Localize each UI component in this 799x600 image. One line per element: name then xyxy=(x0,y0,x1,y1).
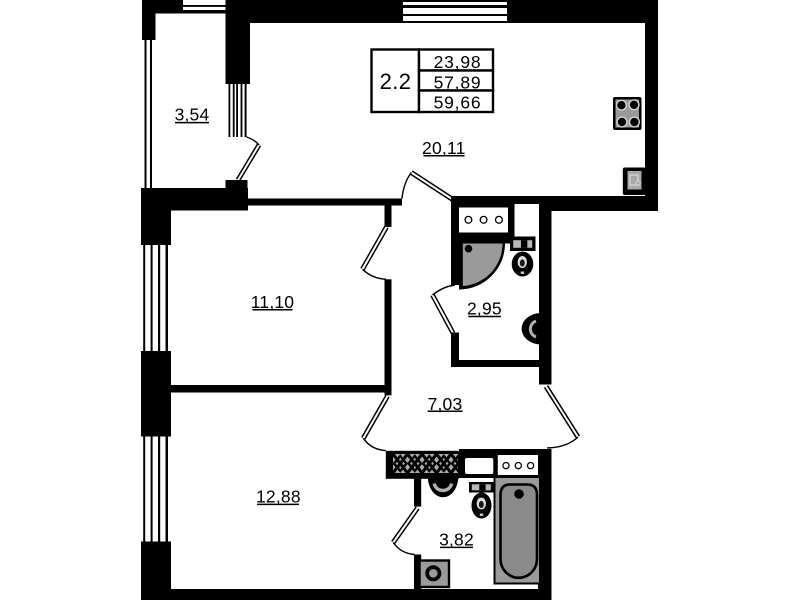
svg-text:2.2: 2.2 xyxy=(380,69,412,94)
svg-text:11,10: 11,10 xyxy=(251,292,295,312)
svg-text:12,88: 12,88 xyxy=(256,487,301,507)
svg-text:3,54: 3,54 xyxy=(175,105,210,125)
svg-text:3,82: 3,82 xyxy=(439,529,474,549)
svg-text:20,11: 20,11 xyxy=(422,138,466,158)
svg-text:57,89: 57,89 xyxy=(434,73,482,93)
svg-text:2,95: 2,95 xyxy=(467,298,502,318)
svg-text:59,66: 59,66 xyxy=(434,93,482,113)
svg-text:23,98: 23,98 xyxy=(434,52,482,72)
